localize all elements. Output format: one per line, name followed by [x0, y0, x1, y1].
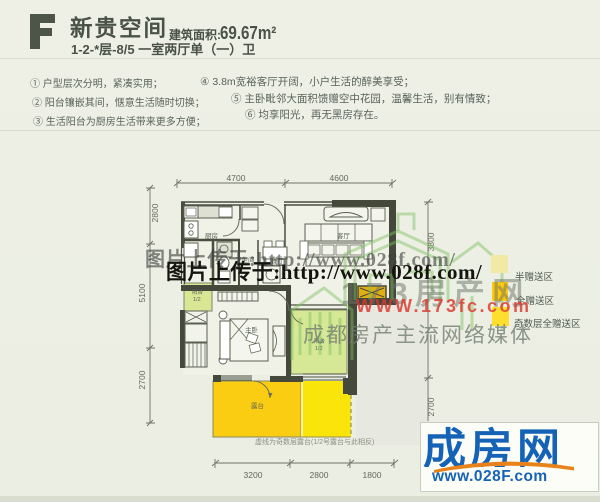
svg-text:2800: 2800 [310, 470, 329, 480]
svg-text:1800: 1800 [363, 470, 382, 480]
svg-text:露台: 露台 [251, 401, 264, 410]
svg-text:虚线为奇数层露台(1/2号露台与此相反): 虚线为奇数层露台(1/2号露台与此相反) [255, 437, 374, 446]
svg-text:厨房: 厨房 [205, 231, 218, 240]
svg-text:4600: 4600 [330, 173, 349, 183]
svg-text:阳台: 阳台 [192, 288, 204, 296]
svg-text:4700: 4700 [227, 173, 246, 183]
svg-text:客厅: 客厅 [337, 231, 351, 240]
svg-text:3200: 3200 [244, 470, 263, 480]
svg-text:2700: 2700 [426, 397, 436, 416]
svg-text:1/2: 1/2 [193, 297, 201, 303]
svg-text:2800: 2800 [150, 203, 160, 222]
svg-text:主卧: 主卧 [245, 325, 259, 334]
svg-text:2700: 2700 [137, 370, 147, 389]
svg-text:5100: 5100 [137, 283, 147, 302]
